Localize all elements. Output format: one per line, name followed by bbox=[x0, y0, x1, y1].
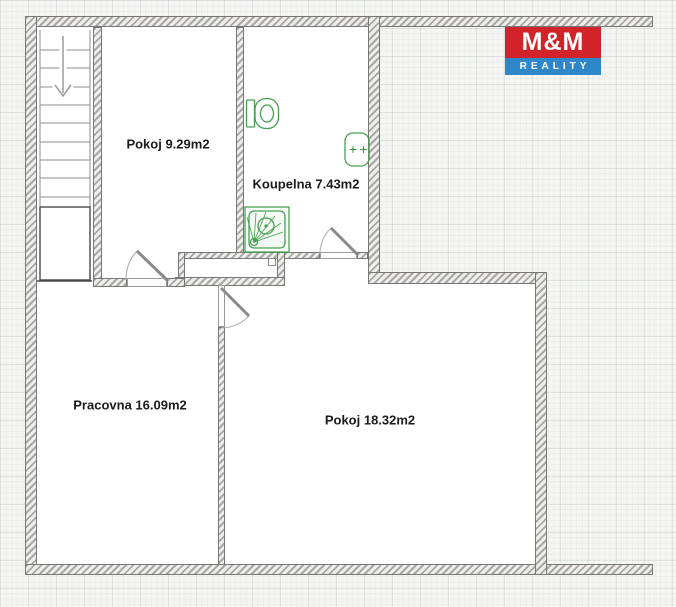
wall-step-right bbox=[368, 272, 547, 284]
room-label-koupelna: Koupelna 7.43m2 bbox=[253, 177, 360, 192]
agency-logo-name: M&M bbox=[505, 27, 601, 58]
threshold-pokoj-large-door bbox=[218, 285, 225, 327]
room-label-pokoj-large: Pokoj 18.32m2 bbox=[325, 413, 415, 428]
threshold-pokoj-small-door bbox=[127, 278, 167, 287]
wall-bathroom-bottom-left bbox=[178, 252, 320, 259]
wall-bottom bbox=[25, 564, 653, 575]
room-label-pokoj-small: Pokoj 9.29m2 bbox=[126, 137, 209, 152]
wall-pracovna-top-right bbox=[167, 278, 185, 287]
wall-niche-bottom bbox=[175, 277, 285, 286]
agency-logo: M&M REALITY bbox=[505, 27, 601, 75]
threshold-koupelna-door bbox=[320, 252, 357, 259]
wall-right-lower bbox=[535, 272, 547, 575]
wall-right-upper bbox=[368, 16, 380, 284]
room-label-pracovna: Pracovna 16.09m2 bbox=[73, 398, 186, 413]
wall-pokoj-koupelna-divider bbox=[236, 27, 244, 253]
wall-lower-rooms-divider bbox=[218, 327, 225, 565]
wall-pracovna-top-left bbox=[93, 278, 127, 287]
pillar-marker bbox=[268, 258, 276, 266]
wall-stairs-divider bbox=[93, 27, 102, 279]
agency-logo-subtitle: REALITY bbox=[505, 58, 601, 75]
wall-left bbox=[25, 16, 37, 575]
floor-upper-section bbox=[37, 27, 368, 564]
wall-bathroom-bottom-right bbox=[357, 252, 368, 259]
floorplan-canvas: Pokoj 9.29m2 Koupelna 7.43m2 Pracovna 16… bbox=[0, 0, 676, 607]
wall-top bbox=[25, 16, 653, 27]
